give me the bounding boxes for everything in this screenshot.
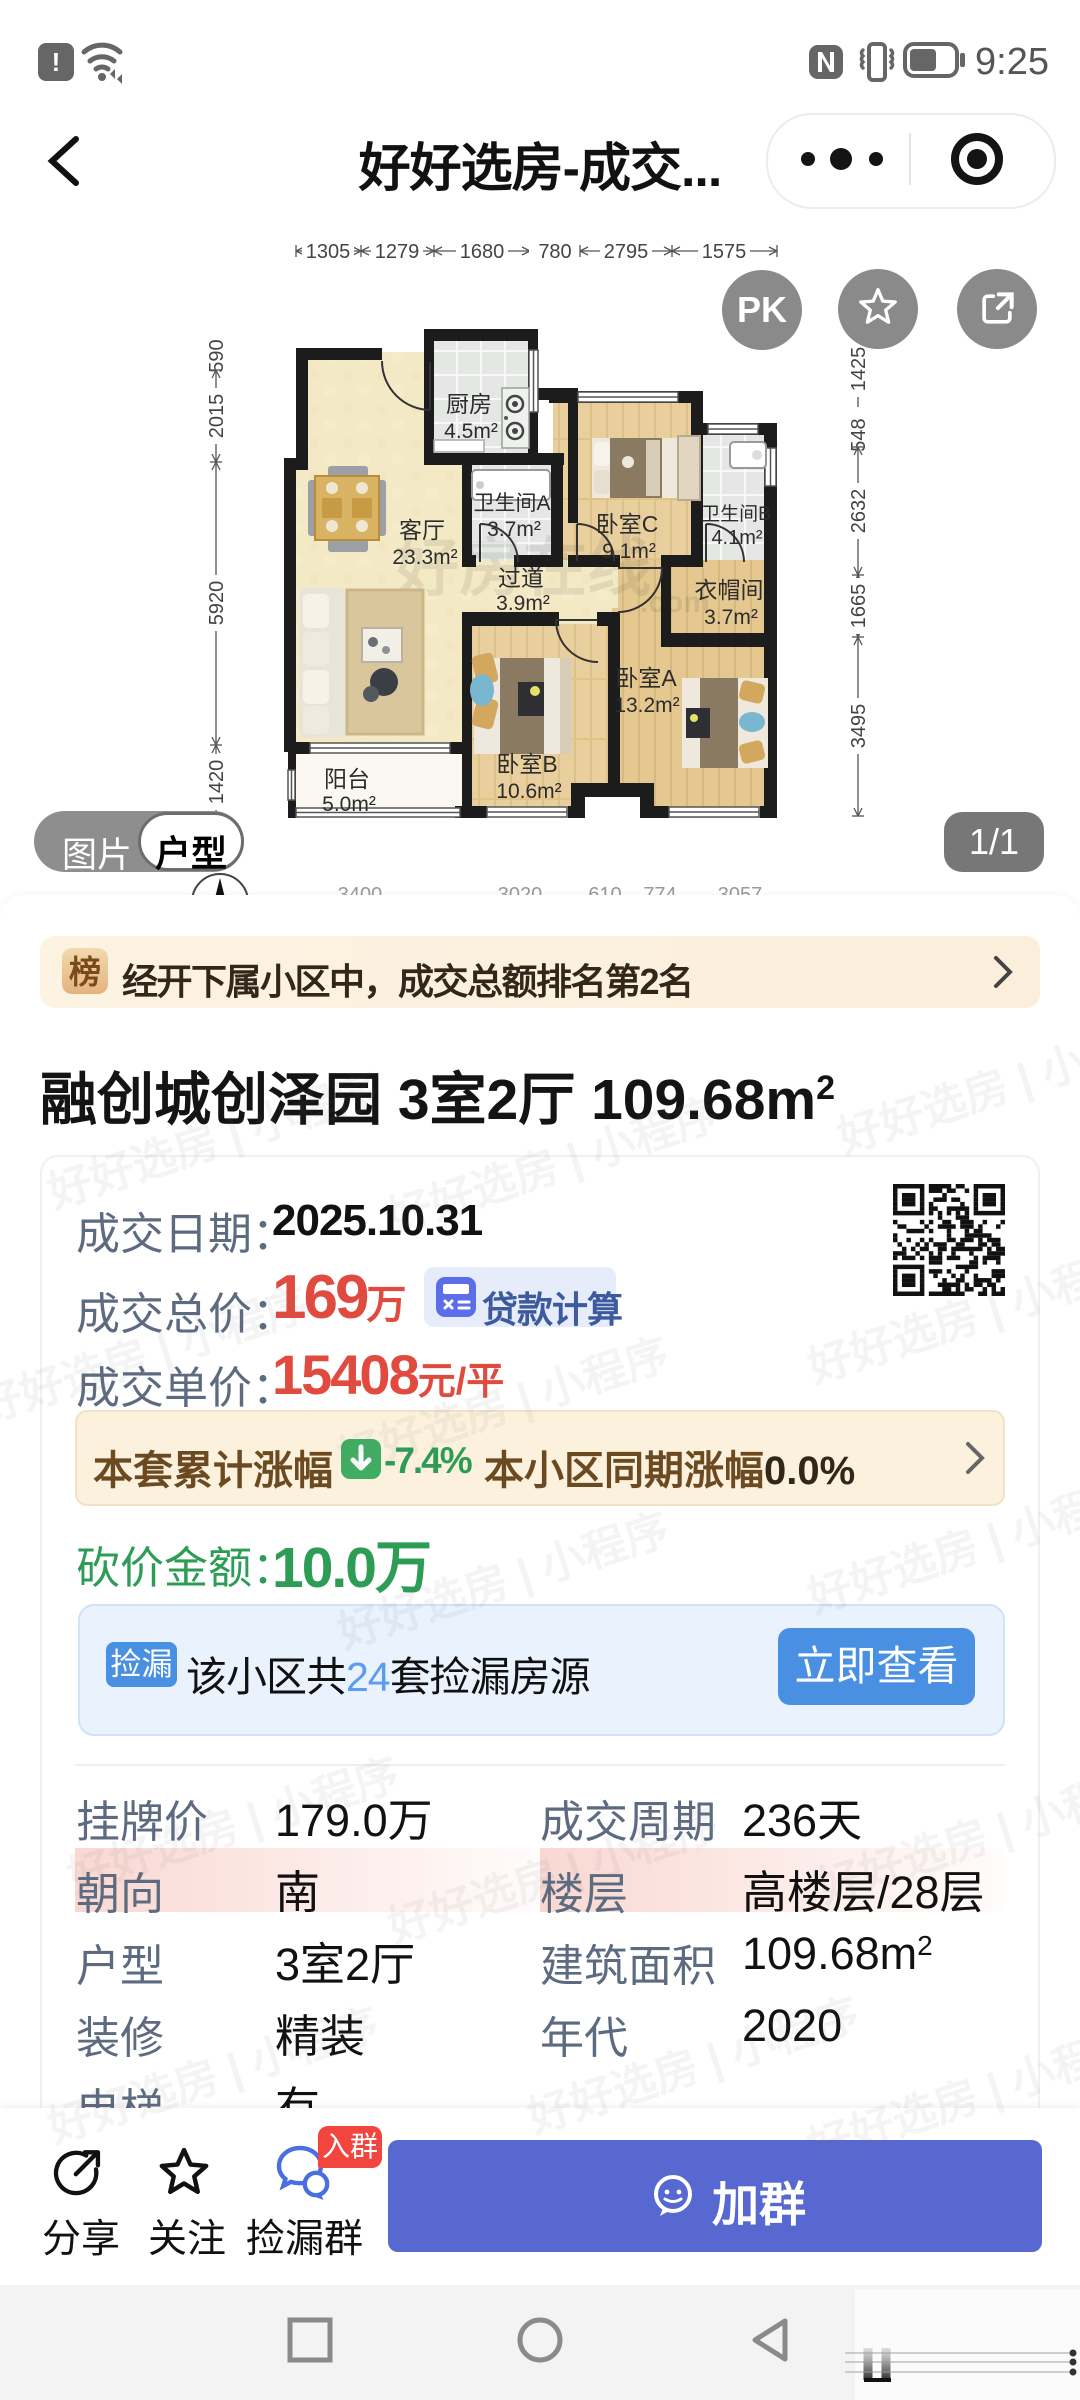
svg-text:1575: 1575 (702, 241, 747, 263)
svg-text:5920: 5920 (206, 581, 228, 626)
svg-text:1420: 1420 (206, 760, 228, 805)
svg-text:1305: 1305 (306, 241, 351, 263)
svg-text:774: 774 (643, 884, 676, 895)
svg-text:4.1m²: 4.1m² (711, 527, 762, 549)
svg-text:2015: 2015 (206, 394, 228, 439)
svg-text:10.6m²: 10.6m² (496, 780, 561, 803)
svg-text:厨房: 厨房 (446, 391, 492, 417)
svg-text:4.5m²: 4.5m² (444, 420, 498, 443)
svg-text:2795: 2795 (604, 241, 649, 263)
svg-text:780: 780 (538, 241, 571, 263)
svg-text:9.1m²: 9.1m² (602, 540, 656, 563)
svg-text:590: 590 (206, 339, 228, 372)
svg-text:3.7m²: 3.7m² (487, 518, 541, 541)
svg-text:5.0m²: 5.0m² (322, 793, 376, 816)
svg-text:1425: 1425 (848, 347, 870, 392)
svg-text:卫生间B: 卫生间B (701, 503, 771, 525)
svg-text:13.2m²: 13.2m² (614, 694, 679, 717)
svg-text:1680: 1680 (460, 241, 505, 263)
svg-text:卫生间A: 卫生间A (473, 492, 550, 515)
svg-text:1665: 1665 (848, 584, 870, 629)
svg-text:23.3m²: 23.3m² (392, 546, 457, 569)
svg-text:610: 610 (588, 884, 621, 895)
svg-text:3495: 3495 (848, 704, 870, 749)
svg-text:3400: 3400 (338, 884, 383, 895)
svg-text:3.9m²: 3.9m² (496, 592, 550, 615)
svg-text:客厅: 客厅 (399, 517, 445, 543)
svg-text:3.7m²: 3.7m² (704, 606, 758, 629)
svg-text:2632: 2632 (848, 489, 870, 534)
svg-text:卧室A: 卧室A (615, 665, 677, 691)
svg-text:卧室B: 卧室B (496, 751, 557, 777)
svg-text:阳台: 阳台 (324, 766, 370, 792)
svg-text:卧室C: 卧室C (596, 511, 659, 537)
svg-text:1279: 1279 (375, 241, 420, 263)
svg-text:过道: 过道 (498, 565, 544, 591)
svg-text:3020: 3020 (498, 884, 543, 895)
svg-text:3057: 3057 (718, 884, 763, 895)
svg-text:衣帽间: 衣帽间 (695, 577, 764, 603)
